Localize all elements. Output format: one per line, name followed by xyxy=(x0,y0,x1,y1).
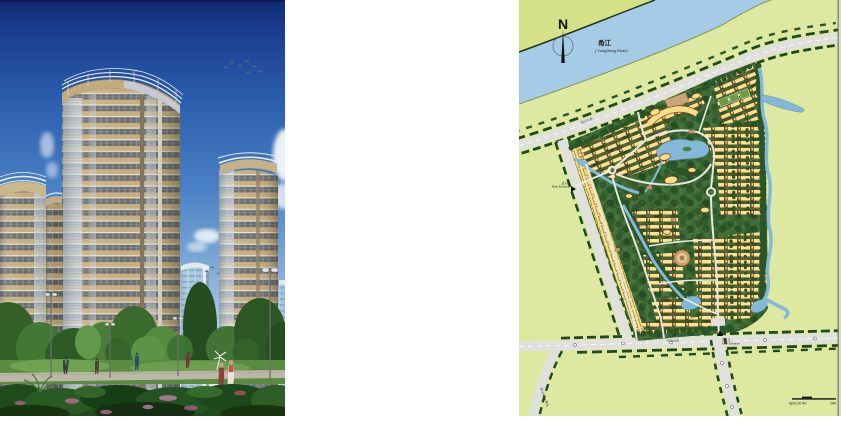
svg-text:Main Entrance: Main Entrance xyxy=(552,185,570,189)
svg-text:组团绿地: 组团绿地 xyxy=(639,223,649,227)
svg-text:组团: 组团 xyxy=(669,303,674,307)
svg-text:环镇北路: 环镇北路 xyxy=(667,338,679,343)
svg-text:组团: 组团 xyxy=(729,257,734,261)
svg-text:( YongJiang River): ( YongJiang River) xyxy=(595,48,628,53)
svg-text:组团绿地: 组团绿地 xyxy=(611,147,621,151)
svg-text:组团: 组团 xyxy=(619,297,624,301)
svg-text:Main Entrance: Main Entrance xyxy=(722,342,740,346)
svg-text:100: 100 xyxy=(830,402,836,406)
svg-text:人工湖: 人工湖 xyxy=(677,177,685,181)
svg-text:中心广场: 中心广场 xyxy=(687,247,697,251)
svg-text:0(m) 20 40: 0(m) 20 40 xyxy=(789,402,806,406)
svg-text:甬江: 甬江 xyxy=(598,38,612,47)
svg-text:中心会所: 中心会所 xyxy=(669,117,679,121)
svg-text:N: N xyxy=(558,16,568,32)
svg-text:组团: 组团 xyxy=(719,137,724,141)
svg-text:滨水绿带: 滨水绿带 xyxy=(745,177,755,181)
